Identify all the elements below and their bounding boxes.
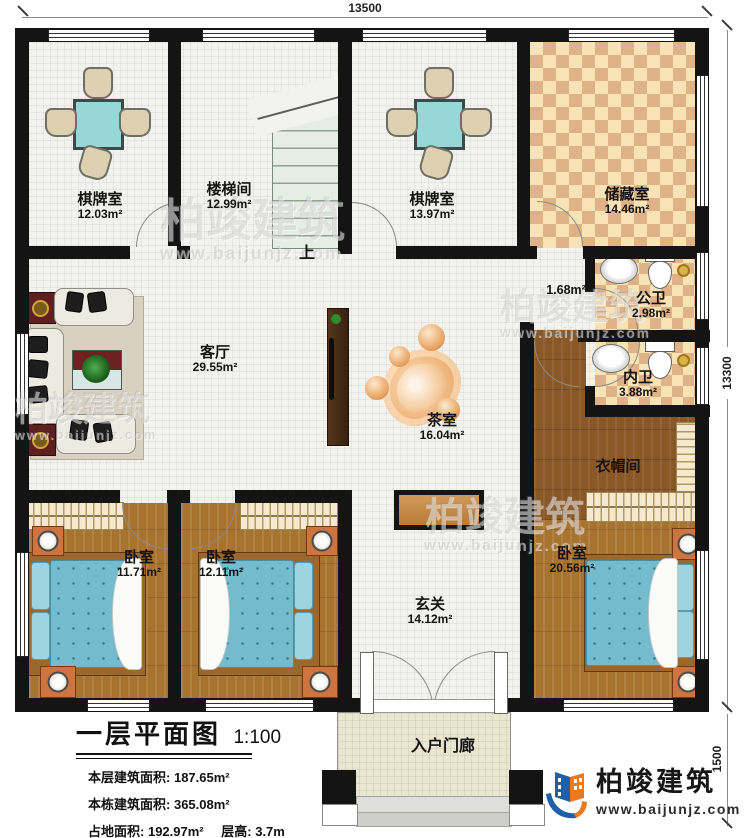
dimension-top: 13500 xyxy=(344,1,385,15)
dimension-tick xyxy=(721,19,732,30)
window xyxy=(563,700,674,711)
wardrobe xyxy=(586,492,706,522)
wall xyxy=(15,490,120,503)
sink-icon xyxy=(600,255,638,284)
mahjong-table xyxy=(414,99,465,150)
pebble-icon xyxy=(418,324,445,351)
chair-icon xyxy=(83,67,113,99)
nightstand xyxy=(32,526,64,556)
room-label-private-bath: 内卫 3.88m² xyxy=(619,369,657,400)
room-label-hall-nook: 1.68m² xyxy=(546,283,586,297)
brand-logo-icon xyxy=(542,768,588,824)
room-label-stairwell: 楼梯间 12.99m² xyxy=(206,181,251,212)
bed-pillow xyxy=(294,612,313,660)
lamp-icon xyxy=(312,531,333,552)
chair-icon xyxy=(45,108,77,137)
window xyxy=(202,30,315,41)
table-lamp-icon xyxy=(32,432,49,449)
nightstand xyxy=(40,666,76,698)
door-jamb xyxy=(360,652,374,714)
plan-scale: 1:100 xyxy=(233,727,281,748)
porch-pillar xyxy=(509,770,543,804)
window xyxy=(362,30,487,41)
title-underline xyxy=(76,753,252,759)
wall xyxy=(585,405,710,417)
sofa-pillow xyxy=(28,336,48,353)
room-label-storage: 储藏室 14.46m² xyxy=(604,186,649,217)
window xyxy=(697,550,708,660)
window xyxy=(697,347,708,405)
room-label-master-bedroom: 卧室 20.56m² xyxy=(550,545,595,576)
stairs-up-label: 上 xyxy=(299,245,315,263)
wall xyxy=(15,246,130,259)
pebble-icon xyxy=(389,346,410,367)
chair-icon xyxy=(460,108,492,137)
window xyxy=(17,552,28,657)
window xyxy=(17,333,28,415)
room-label-game-room-1: 棋牌室 12.03m² xyxy=(77,191,122,222)
brand-name: 柏竣建筑 xyxy=(596,768,741,798)
dimension-line-top xyxy=(22,17,708,18)
window xyxy=(568,30,675,41)
drain-icon xyxy=(677,354,690,367)
nightstand xyxy=(302,666,338,698)
stat-floor-area: 本层建筑面积: 187.65m² xyxy=(88,767,285,786)
wall xyxy=(338,503,352,700)
room-label-bedroom-1: 卧室 11.71m² xyxy=(117,549,161,580)
room-label-game-room-2: 棋牌室 13.97m² xyxy=(409,191,454,222)
room-label-living-room: 客厅 29.55m² xyxy=(193,344,238,375)
room-label-entry-porch: 入户门廊 xyxy=(411,738,475,756)
chair-icon xyxy=(424,67,454,99)
sofa-pillow xyxy=(92,421,113,444)
porch-pillar-base xyxy=(509,804,545,826)
chair-icon xyxy=(386,108,418,137)
lamp-icon xyxy=(38,531,59,552)
lamp-icon xyxy=(48,672,69,693)
stat-footprint-and-height: 占地面积: 192.97m² 层高: 3.7m xyxy=(88,821,285,838)
dimension-tick xyxy=(17,5,28,16)
window xyxy=(48,30,150,41)
sofa-pillow xyxy=(69,419,90,441)
porch-pillar xyxy=(322,770,356,804)
wall xyxy=(177,246,190,259)
sofa-pillow xyxy=(27,385,49,404)
dimension-tick xyxy=(701,5,712,16)
wall xyxy=(583,246,709,259)
entry-threshold xyxy=(362,699,498,713)
window xyxy=(87,700,150,711)
window xyxy=(697,75,708,207)
wall xyxy=(168,503,181,700)
wall xyxy=(338,42,352,254)
console-cabinet xyxy=(394,490,484,530)
window xyxy=(697,252,708,320)
lamp-icon xyxy=(310,672,331,693)
wall xyxy=(585,252,595,292)
room-label-foyer: 玄关 14.12m² xyxy=(408,596,453,627)
wall xyxy=(167,490,190,503)
chair-icon xyxy=(119,108,151,137)
plant-icon xyxy=(331,314,341,324)
wall xyxy=(168,42,181,246)
sofa-pillow xyxy=(87,291,108,313)
window xyxy=(205,700,314,711)
wall xyxy=(396,246,537,259)
room-label-cloakroom: 衣帽间 xyxy=(595,458,640,475)
table-lamp-icon xyxy=(32,300,49,317)
sofa-pillow xyxy=(65,291,85,313)
floor-plan: 柏竣建筑 www.baijunjz.com 柏竣建筑 www.baijunjz.… xyxy=(0,0,750,838)
drain-icon xyxy=(677,264,690,277)
nightstand xyxy=(306,526,338,556)
bed-pillow xyxy=(294,562,313,610)
brand-logo: 柏竣建筑 www.baijunjz.com xyxy=(542,768,741,824)
pebble-icon xyxy=(365,376,389,400)
door-jamb xyxy=(494,652,508,714)
room-label-public-bath: 公卫 2.98m² xyxy=(632,290,670,321)
room-label-bedroom-2: 卧室 12.11m² xyxy=(199,549,243,580)
bed-blanket xyxy=(648,558,678,668)
wall xyxy=(517,42,530,246)
stairs xyxy=(272,113,342,249)
mahjong-table xyxy=(73,99,124,150)
page-title: 一层平面图 xyxy=(76,719,221,749)
wall xyxy=(235,490,352,503)
bed-pillow xyxy=(31,612,50,660)
wall xyxy=(520,322,534,700)
porch-pillar-base xyxy=(322,804,358,826)
room-label-tea-room: 茶室 16.04m² xyxy=(420,412,465,443)
stat-building-area: 本栋建筑面积: 365.08m² xyxy=(88,794,285,813)
title-block: 一层平面图 1:100 本层建筑面积: 187.65m² 本栋建筑面积: 365… xyxy=(76,714,285,838)
tv-icon xyxy=(329,338,334,400)
bed-pillow xyxy=(31,562,50,610)
porch-step-2 xyxy=(356,812,512,827)
sofa-pillow xyxy=(27,359,49,379)
dimension-right: 13300 xyxy=(720,347,734,399)
potted-plant-icon xyxy=(82,355,110,383)
wall xyxy=(578,330,710,342)
brand-website: www.baijunjz.com xyxy=(596,801,741,817)
